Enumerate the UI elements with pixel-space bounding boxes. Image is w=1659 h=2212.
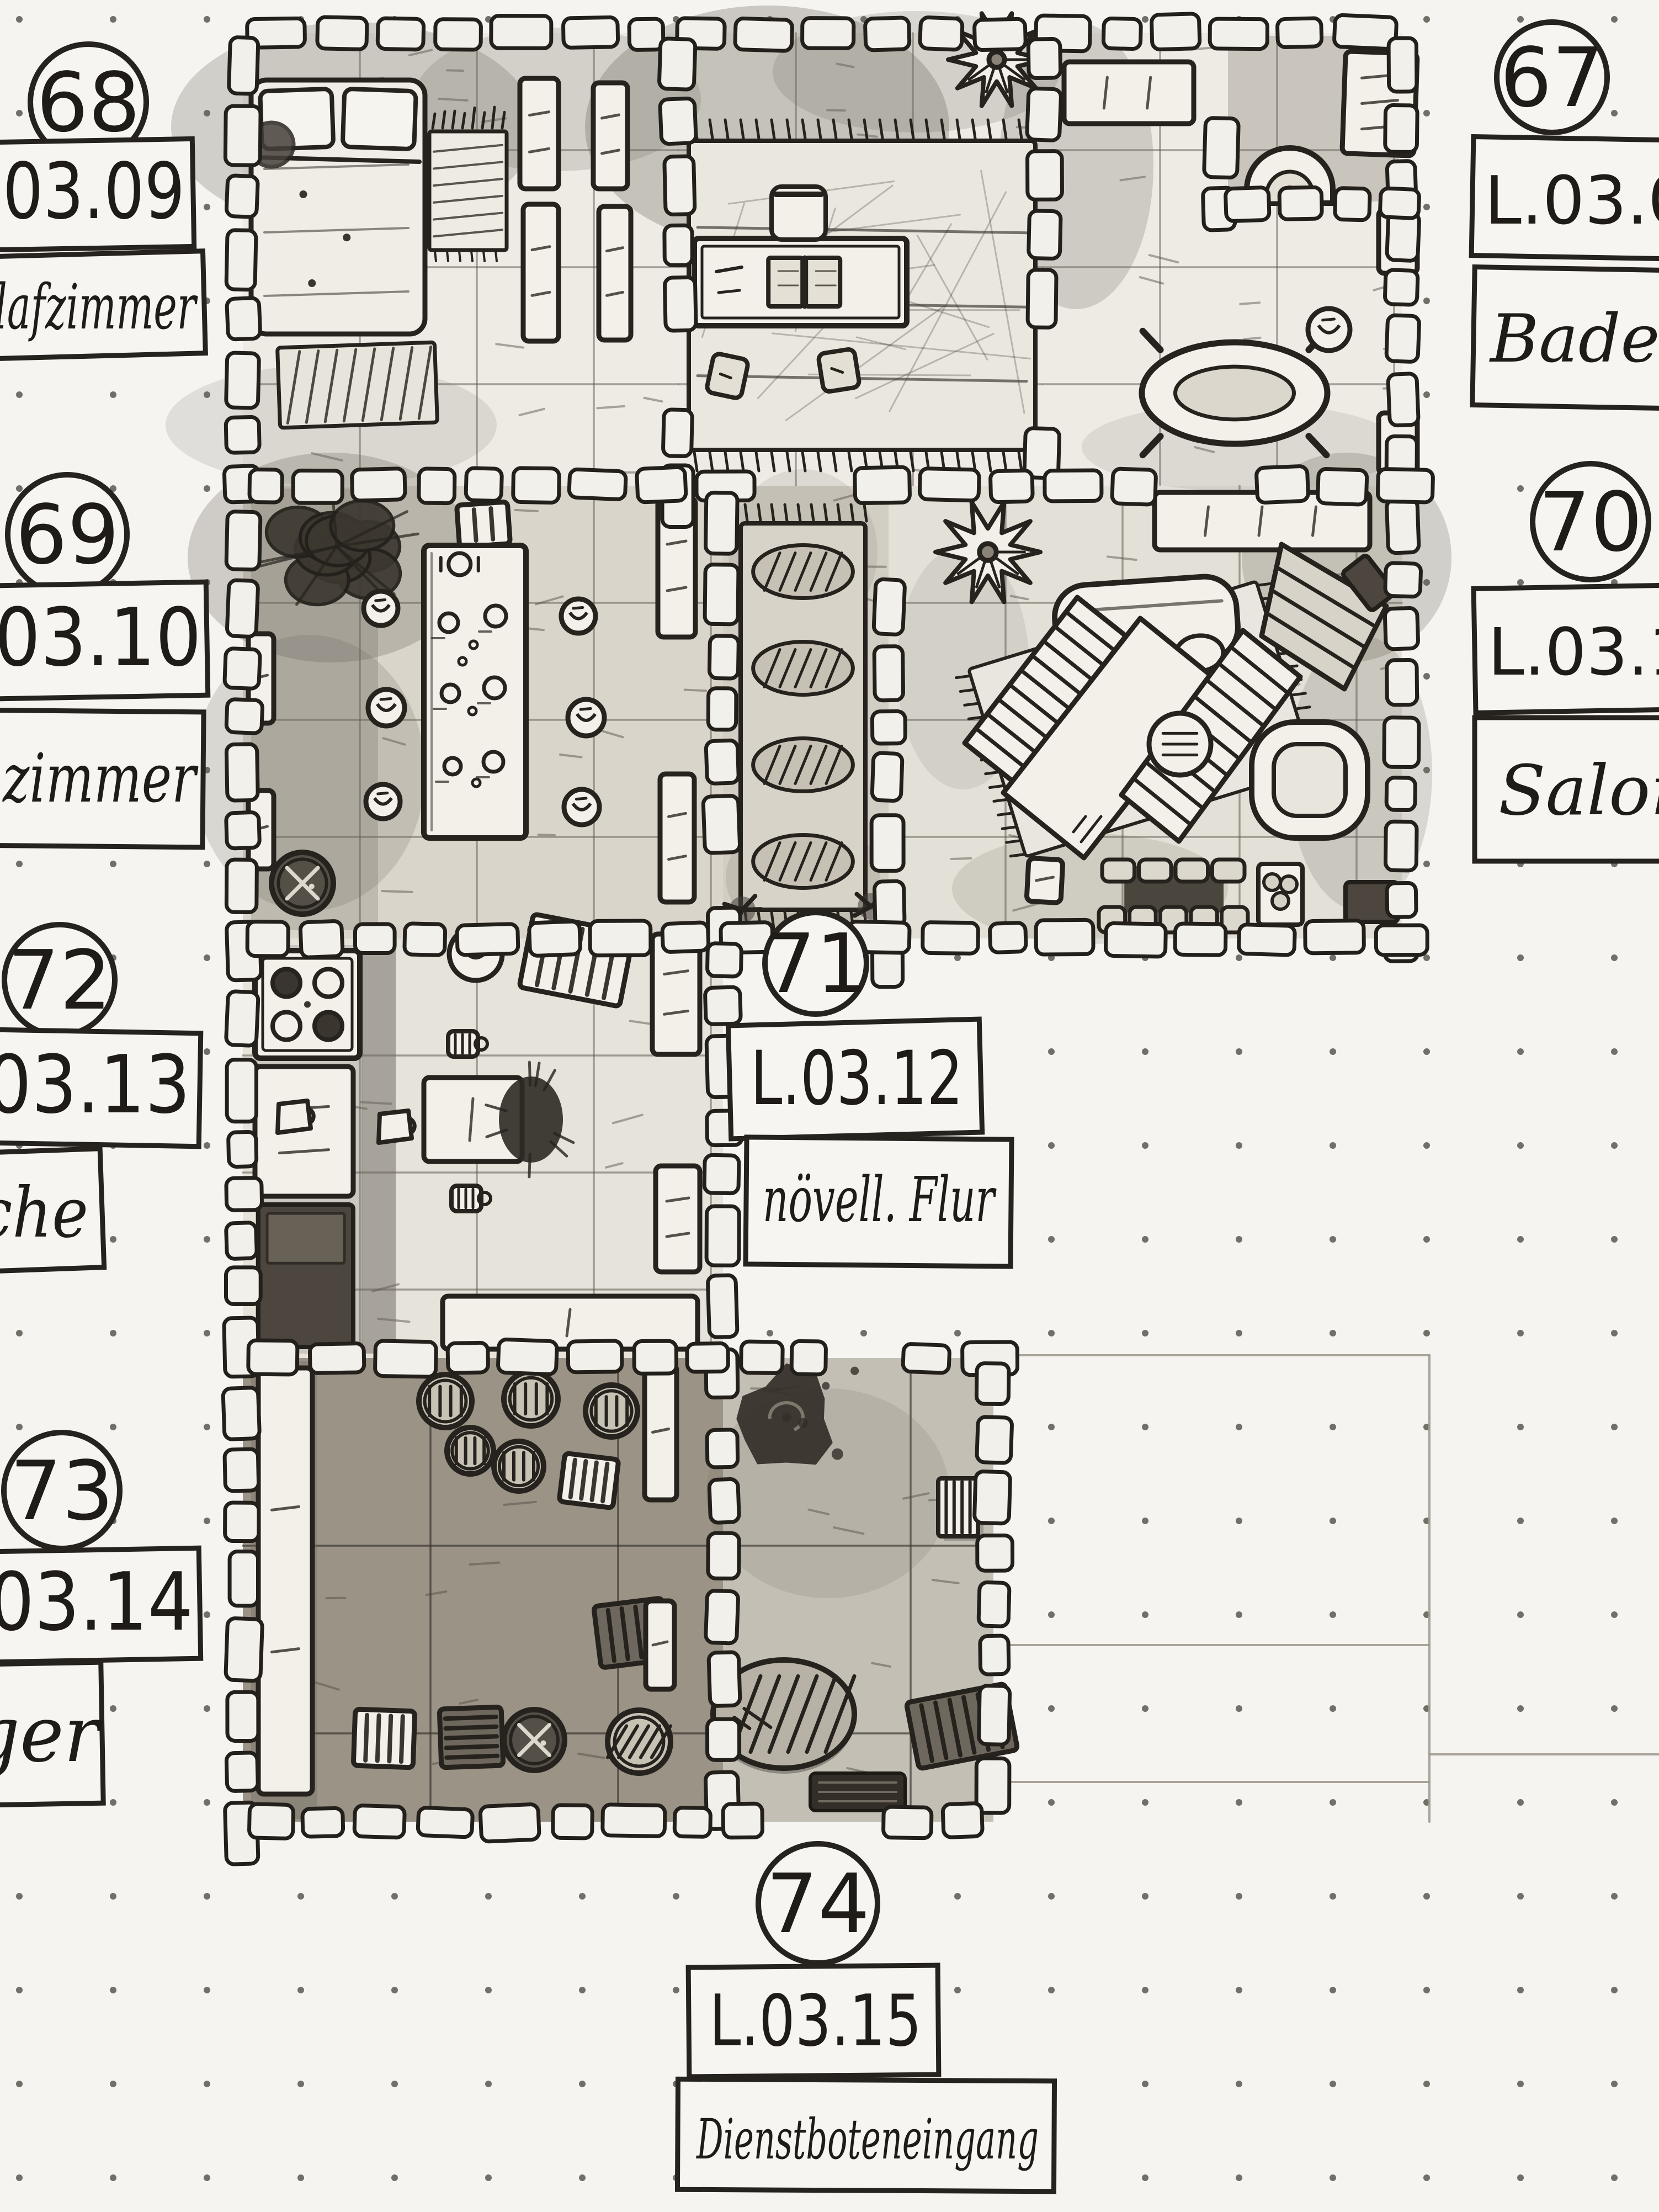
furniture-barrel <box>586 1385 637 1437</box>
room-name: che <box>0 1173 88 1253</box>
furniture-sbox <box>456 502 510 547</box>
furniture-stool <box>366 784 400 819</box>
room-code: 03.10 <box>0 591 201 685</box>
furniture-chairtd <box>772 187 826 240</box>
furniture-stool <box>568 699 604 736</box>
room-name: Salon <box>1498 751 1659 831</box>
furniture-box <box>656 1166 700 1272</box>
room-code: 03.09 <box>3 147 185 237</box>
furniture-box <box>645 1365 677 1500</box>
furniture-stool <box>364 591 398 625</box>
furniture-box <box>1064 62 1194 124</box>
room-code: L.03.11 <box>1488 614 1659 690</box>
furniture-pitcher <box>278 1101 313 1133</box>
furniture-tapestry <box>429 107 507 261</box>
room-code: L.03.12 <box>751 1035 963 1122</box>
furniture-tableitems <box>424 545 526 838</box>
furniture-barrel <box>608 1710 671 1773</box>
furniture-bed <box>251 80 425 334</box>
furniture-darkbox <box>258 1205 353 1347</box>
furniture-box <box>599 206 631 340</box>
furniture-box <box>646 1601 674 1689</box>
furniture-barrel <box>419 1375 472 1428</box>
furniture-barrel <box>494 1441 544 1491</box>
furniture-box <box>593 83 628 189</box>
furniture-cushion <box>818 348 860 392</box>
room-number: 74 <box>766 1856 870 1951</box>
room-number: 73 <box>10 1444 114 1539</box>
room-number: 71 <box>764 916 868 1011</box>
furniture-stool <box>561 599 595 633</box>
furniture-cushion <box>706 353 749 399</box>
furniture-stool <box>368 689 405 726</box>
furniture-sidetable <box>1149 713 1211 775</box>
furniture-box <box>520 78 559 189</box>
room-code: 03.14 <box>0 1556 193 1649</box>
furniture-box <box>258 1368 312 1794</box>
furniture-runner <box>741 505 866 929</box>
floor-plan-drawing: 6803.09lafzimmer67L.03.0Badez6903.10zimm… <box>0 0 1659 2212</box>
furniture-barrel <box>272 852 333 914</box>
notebook-page: 6803.09lafzimmer67L.03.0Badez6903.10zimm… <box>0 0 1659 2212</box>
furniture-stool <box>564 789 599 825</box>
furniture-deskbook <box>694 238 907 326</box>
room-code: 03.13 <box>0 1038 190 1132</box>
room-code: L.03.15 <box>709 1980 922 2062</box>
room-code: L.03.0 <box>1485 163 1659 240</box>
room-name: zimmer <box>2 739 199 818</box>
furniture-box <box>1027 858 1063 903</box>
furniture-barrel <box>447 1428 493 1474</box>
furniture-barrel <box>504 1710 565 1770</box>
furniture-stool <box>1308 309 1350 351</box>
room-name: lafzimmer <box>0 272 198 343</box>
room-number: 69 <box>15 487 119 582</box>
room-name: Dienstboteneingang <box>696 2107 1039 2172</box>
furniture-barrel <box>504 1372 558 1426</box>
room-name: ger <box>0 1690 103 1780</box>
furniture-pitcher <box>379 1111 414 1143</box>
furniture-rughatch <box>278 342 438 428</box>
furniture-logs <box>1258 864 1302 925</box>
furniture-armchair <box>1252 722 1368 838</box>
furniture-stove <box>255 951 360 1058</box>
room-number: 70 <box>1539 475 1642 570</box>
furniture-box <box>660 774 694 902</box>
room-name: növell. Flur <box>763 1164 997 1236</box>
room-number: 68 <box>36 55 140 150</box>
room-number: 72 <box>8 933 111 1028</box>
furniture-box <box>523 204 559 341</box>
room-number: 67 <box>1500 30 1604 125</box>
furniture-sbox <box>439 1707 503 1768</box>
furniture-sbox <box>353 1709 414 1768</box>
furniture-sbox <box>559 1453 619 1508</box>
room-name: Badez <box>1489 301 1659 378</box>
